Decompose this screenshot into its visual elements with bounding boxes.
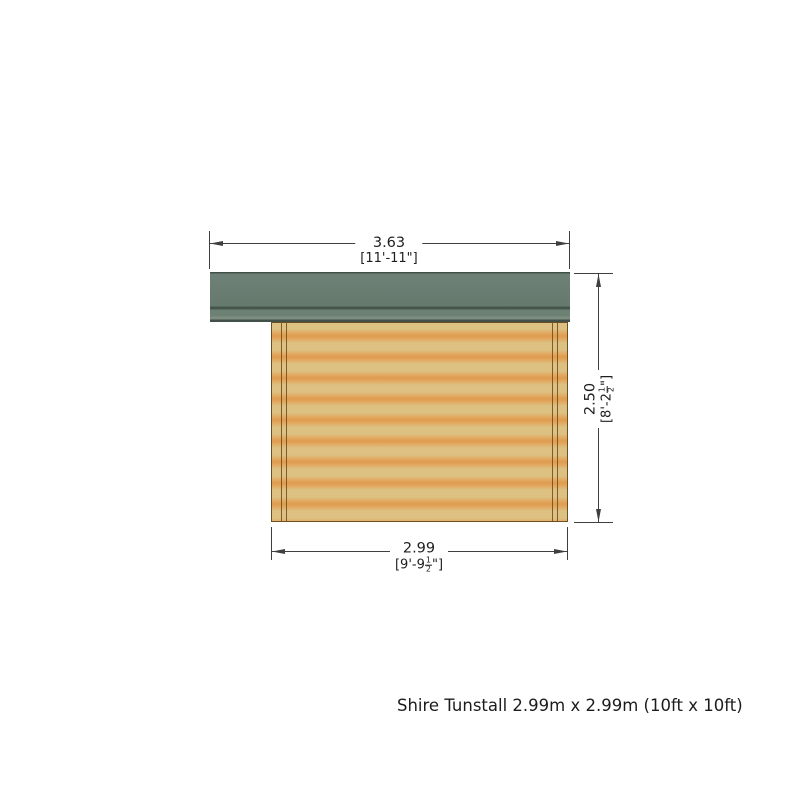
dimension-height: 2.50 [8'-212"] <box>583 370 616 428</box>
dimension-wall-width-metric: 2.99 <box>395 541 443 557</box>
dimension-wall-width: 2.99 [9'-912"] <box>390 541 448 574</box>
product-caption: Shire Tunstall 2.99m x 2.99m (10ft x 10f… <box>397 696 743 715</box>
dimension-height-imperial: [8'-212"] <box>599 375 616 423</box>
dimension-lines <box>0 0 800 800</box>
dimension-height-metric: 2.50 <box>583 375 599 423</box>
dimension-roof-width: 3.63 [11'-11"] <box>355 235 422 267</box>
drawing-canvas: 3.63 [11'-11"] 2.50 [8'-212"] 2.99 [9'-9… <box>0 0 800 800</box>
dimension-roof-width-imperial: [11'-11"] <box>360 251 417 267</box>
fraction-half: 12 <box>599 386 615 393</box>
dimension-wall-width-imperial: [9'-912"] <box>395 557 443 574</box>
fraction-half: 12 <box>425 557 432 573</box>
dimension-roof-width-metric: 3.63 <box>360 235 417 251</box>
